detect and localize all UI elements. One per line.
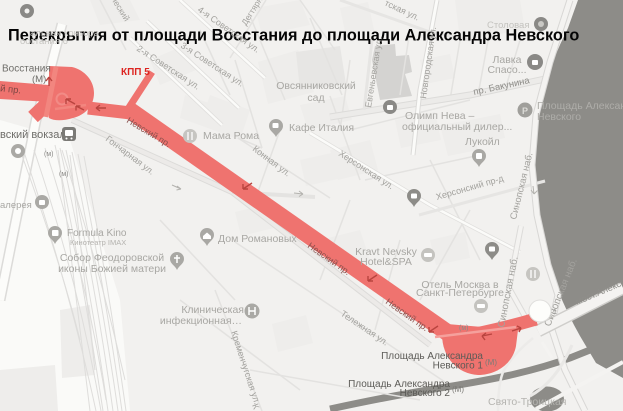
svg-text:инфекционная…: инфекционная… bbox=[160, 315, 242, 327]
svg-text:(м): (м) bbox=[459, 325, 468, 332]
svg-text:Лукойл: Лукойл bbox=[465, 136, 500, 148]
svg-text:Невского: Невского bbox=[537, 111, 581, 123]
svg-text:Мама Рома: Мама Рома bbox=[203, 130, 259, 142]
svg-text:вский вокзал: вский вокзал bbox=[0, 129, 66, 141]
svg-text:Овсянниковский: Овсянниковский bbox=[276, 80, 356, 92]
svg-text:официальный дилер...: официальный дилер... bbox=[402, 121, 512, 133]
svg-text:альная контора: альная контора bbox=[30, 28, 100, 39]
svg-text:КПП 5: КПП 5 bbox=[121, 67, 150, 78]
svg-text:(м): (м) bbox=[44, 151, 53, 158]
svg-text:Кинотеатр IMAX: Кинотеатр IMAX bbox=[70, 238, 126, 247]
svg-text:Спасо...: Спасо... bbox=[487, 64, 526, 76]
svg-text:иконы Божией матери: иконы Божией матери bbox=[58, 263, 166, 275]
svg-text:Невского 2: Невского 2 bbox=[400, 388, 451, 399]
svg-text:(М): (М) bbox=[452, 385, 464, 394]
svg-text:(м): (м) bbox=[59, 171, 68, 178]
svg-text:Hotel&SPA: Hotel&SPA bbox=[360, 256, 412, 268]
svg-text:P: P bbox=[522, 106, 528, 116]
svg-text:алерея: алерея bbox=[0, 200, 32, 211]
svg-text:Невского 1: Невского 1 bbox=[433, 361, 484, 372]
svg-text:й пр.: й пр. bbox=[0, 83, 22, 96]
svg-text:Свято-Троицкая: Свято-Троицкая bbox=[488, 396, 567, 408]
svg-text:Восстания: Восстания bbox=[2, 64, 51, 75]
svg-text:1: 1 bbox=[553, 309, 557, 316]
svg-text:(М): (М) bbox=[485, 358, 497, 367]
svg-text:(М): (М) bbox=[32, 74, 46, 85]
svg-text:сад: сад bbox=[307, 92, 324, 104]
svg-text:Санкт-Петербурге: Санкт-Петербурге bbox=[416, 287, 504, 299]
svg-text:Дом Романовых: Дом Романовых bbox=[218, 233, 297, 245]
svg-text:Столовая: Столовая bbox=[487, 20, 529, 31]
svg-text:Кафе Италия: Кафе Италия bbox=[289, 122, 354, 134]
